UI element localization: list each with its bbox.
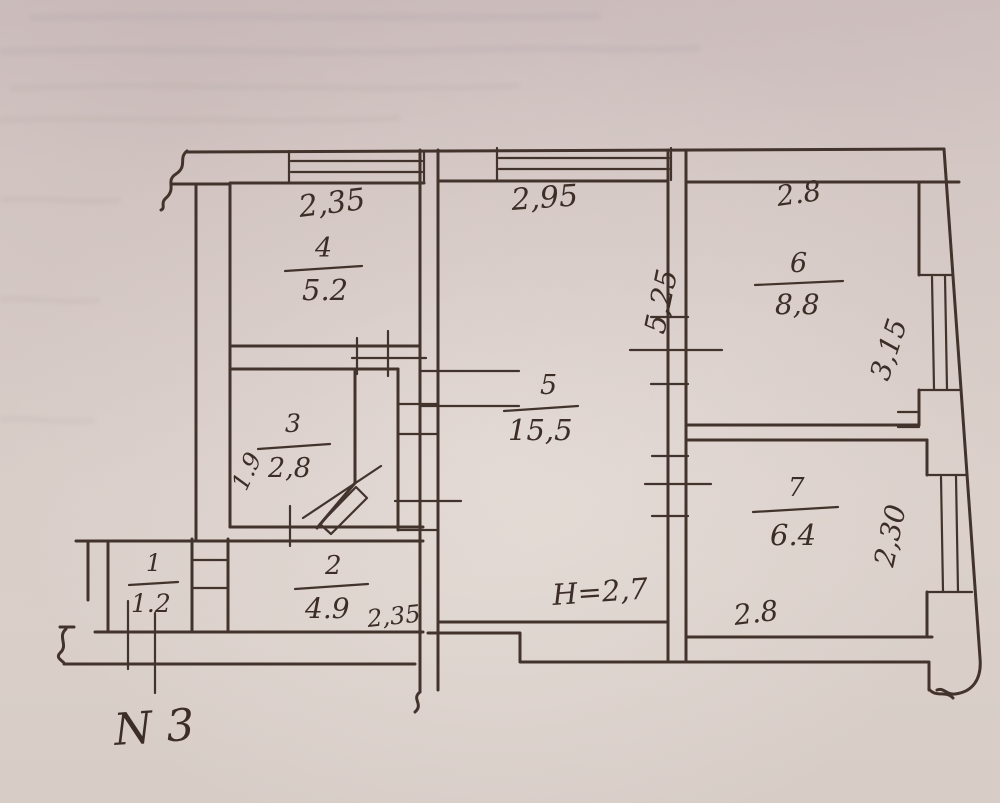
room-7-area: 6.4 — [770, 518, 816, 552]
room-4-width-dim: 2,35 — [296, 182, 368, 225]
room-1-area: 1.2 — [131, 589, 171, 618]
room-5-ceiling-height: H=2,7 — [550, 571, 649, 612]
room-7-number: 7 — [788, 473, 805, 503]
paper-sheet: 2,35 4 5.2 2,95 5 15,5 H=2,7 5,25 2.8 6 … — [0, 0, 1000, 803]
room-7-width-dim: 2.8 — [731, 594, 780, 632]
room-4-number: 4 — [314, 233, 332, 264]
room-4-area: 5.2 — [302, 273, 348, 307]
room-3-area: 2,8 — [267, 453, 311, 484]
room-6-depth-dim: 3,15 — [863, 315, 914, 384]
room-5-number: 5 — [540, 370, 557, 401]
room-2-area: 4.9 — [304, 592, 350, 625]
room-2-width-dim: 2,35 — [365, 600, 422, 634]
room-5-depth-dim: 5,25 — [638, 266, 685, 336]
top-windows — [289, 148, 671, 183]
room-6-area: 8,8 — [775, 288, 820, 321]
labels: 2,35 4 5.2 2,95 5 15,5 H=2,7 5,25 2.8 6 … — [111, 174, 914, 756]
apartment-number-label: N 3 — [111, 699, 196, 756]
room-6-number: 6 — [790, 248, 807, 279]
room-5-area: 15,5 — [508, 413, 573, 447]
room-5-width-dim: 2,95 — [509, 178, 579, 218]
room-3-number: 3 — [285, 409, 301, 438]
room-1-number: 1 — [146, 549, 161, 577]
room-7-depth-dim: 2,30 — [867, 502, 912, 571]
diagonal-door-leaf — [303, 466, 381, 534]
room-3-depth-dim: 1.9 — [226, 448, 268, 494]
floor-plan-canvas: 2,35 4 5.2 2,95 5 15,5 H=2,7 5,25 2.8 6 … — [0, 0, 1000, 803]
room-2-number: 2 — [324, 551, 342, 581]
room-6-width-dim: 2.8 — [773, 174, 823, 213]
